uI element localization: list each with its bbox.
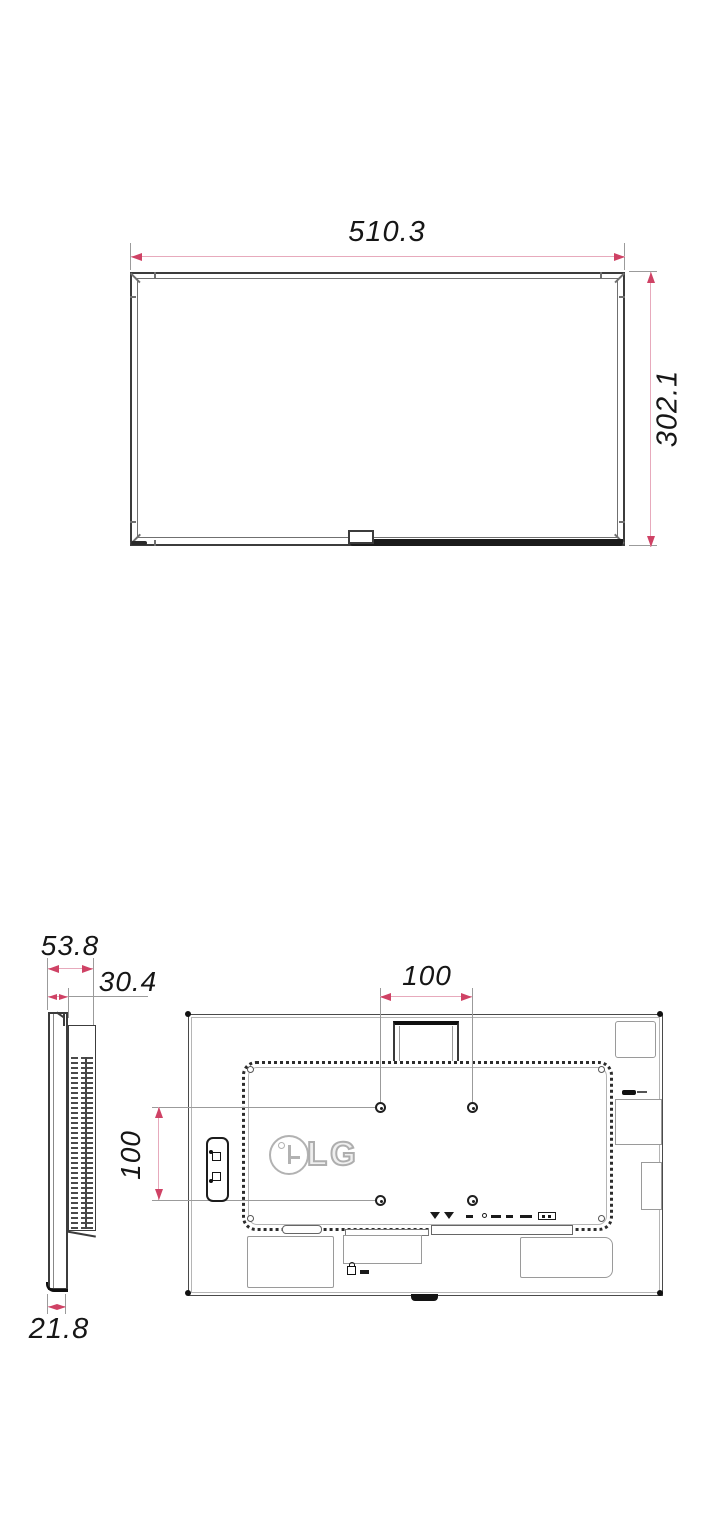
extension-line <box>472 988 473 1102</box>
rear-lower-compartment <box>343 1235 422 1264</box>
rear-stand-mount <box>393 1021 459 1062</box>
extension-line <box>380 988 381 1102</box>
vesa-hole <box>375 1195 386 1206</box>
dim-arrow-up-icon <box>155 1107 163 1118</box>
kensington-lock-icon <box>347 1266 356 1275</box>
port-icon <box>548 1215 551 1218</box>
lg-logo-bar <box>291 1156 300 1159</box>
rear-control-joystick <box>206 1137 229 1202</box>
port-icon <box>430 1212 440 1219</box>
port-icon <box>482 1213 487 1218</box>
port-strip <box>431 1225 573 1235</box>
control-button-dot <box>209 1179 213 1183</box>
panel-corner-hole <box>598 1066 605 1073</box>
rear-side-port-glyph <box>637 1091 647 1093</box>
panel-corner-hole <box>598 1215 605 1222</box>
dim-arrow-right-icon <box>461 993 472 1001</box>
port-icon <box>538 1212 556 1220</box>
vesa-hole <box>375 1102 386 1113</box>
lg-logo-eye <box>278 1142 285 1149</box>
vesa-height-dimension-line <box>158 1107 159 1200</box>
extension-line <box>152 1200 380 1201</box>
port-icon <box>506 1215 513 1218</box>
rear-label-plate <box>615 1021 656 1058</box>
rear-side-compartment <box>615 1099 662 1145</box>
control-button-glyph <box>212 1172 221 1181</box>
front-control-sensor <box>348 530 374 544</box>
lg-logo-letters: LG <box>307 1135 359 1173</box>
vesa-height-label: 100 <box>115 1123 147 1187</box>
port-icon <box>491 1215 501 1218</box>
rear-bottom-tab <box>411 1294 438 1301</box>
vesa-width-dimension-line <box>380 996 472 997</box>
port-icon <box>444 1212 454 1219</box>
corner-screw-dot <box>657 1011 663 1017</box>
lg-logo-stem <box>288 1145 291 1164</box>
rear-lower-compartment <box>247 1236 334 1288</box>
rear-view: 100 100 LG <box>0 0 728 1528</box>
corner-screw-dot <box>185 1011 191 1017</box>
rear-lower-compartment <box>520 1237 613 1278</box>
control-button-dot <box>209 1150 213 1154</box>
dim-arrow-down-icon <box>155 1189 163 1200</box>
dimension-drawing: 510.3 302.1 53 <box>0 0 728 1528</box>
port-icons <box>430 1212 575 1222</box>
vesa-hole <box>467 1195 478 1206</box>
vesa-hole <box>467 1102 478 1113</box>
corner-screw-dot <box>657 1290 663 1296</box>
port-icon <box>520 1215 532 1218</box>
panel-bottom-tab <box>282 1225 322 1234</box>
control-button-glyph <box>212 1152 221 1161</box>
extension-line <box>152 1107 380 1108</box>
port-icon <box>542 1215 545 1218</box>
rear-side-port-glyph <box>622 1090 636 1095</box>
vesa-width-label: 100 <box>387 960 467 992</box>
lock-slot-mark <box>360 1270 369 1274</box>
panel-corner-hole <box>247 1066 254 1073</box>
corner-screw-dot <box>185 1290 191 1296</box>
panel-corner-hole <box>247 1215 254 1222</box>
dim-arrow-left-icon <box>380 993 391 1001</box>
stand-mount-inner-line <box>399 1026 400 1062</box>
port-icon <box>466 1215 473 1218</box>
stand-mount-inner-line <box>452 1026 453 1062</box>
rear-side-compartment <box>641 1162 662 1210</box>
